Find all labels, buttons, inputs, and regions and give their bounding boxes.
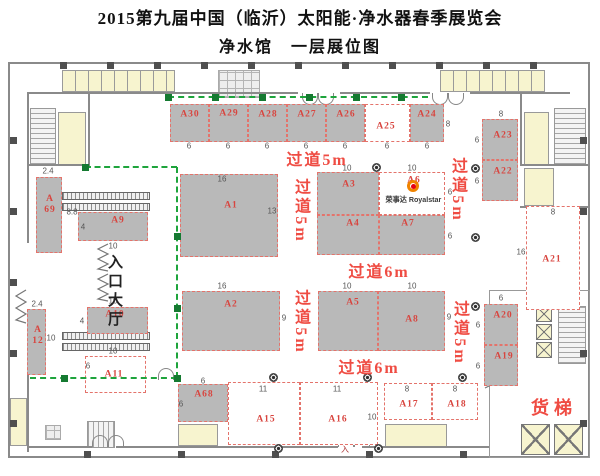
booth-label: A23 — [493, 131, 512, 142]
column-marker — [458, 373, 467, 382]
booth-A21[interactable]: A21 — [526, 206, 580, 310]
path-marker — [259, 94, 266, 101]
dimension-label: 6 — [476, 321, 480, 330]
booth-label: A20 — [493, 311, 512, 322]
booth-label: A22 — [493, 167, 512, 178]
booth-A2[interactable]: A2 — [182, 291, 280, 351]
room-bottom-1 — [178, 424, 218, 446]
booth-label: A17 — [399, 400, 418, 411]
dimension-label: 9 — [282, 314, 286, 323]
booth-A20[interactable]: A20 — [484, 304, 518, 345]
booth-A9[interactable]: A9 — [78, 212, 148, 241]
room-bottom-2 — [385, 424, 447, 448]
escalator-lower — [62, 332, 150, 353]
dimension-label: 6 — [475, 136, 479, 145]
dimension-label: 6 — [385, 142, 389, 151]
booth-A25[interactable]: A25 — [365, 104, 410, 142]
aisle-label: 过道5m — [447, 300, 471, 365]
royalstar-name: 荣事达 Royalstar — [385, 194, 440, 204]
path-marker — [398, 94, 405, 101]
booth-label: A18 — [447, 400, 466, 411]
wall — [520, 164, 590, 166]
wall-column — [342, 62, 349, 69]
aisle-label: 过道5m — [288, 289, 312, 354]
wall-column — [460, 451, 467, 458]
dimension-label: 8 — [446, 120, 450, 129]
booth-label: A2 — [224, 300, 238, 311]
dimension-label: 6 — [179, 400, 183, 409]
booth-label: A15 — [256, 415, 275, 426]
dimension-label: 6 — [201, 377, 205, 386]
booth-label: A28 — [258, 110, 277, 121]
dimension-label: 11 — [333, 385, 341, 394]
wall — [88, 92, 90, 166]
double-door — [92, 435, 124, 447]
booth-label: A4 — [346, 219, 360, 230]
royalstar-logo: 荣事达 Royalstar — [384, 180, 442, 205]
booth-label: A19 — [494, 352, 513, 363]
visitor-path — [30, 377, 177, 379]
path-marker — [165, 94, 172, 101]
wall-column — [580, 137, 587, 144]
dimension-label: 10 — [109, 347, 118, 356]
dimension-label: 8 — [551, 208, 555, 217]
path-marker — [353, 94, 360, 101]
dimension-label: 8 — [453, 385, 457, 394]
path-marker — [212, 94, 219, 101]
booth-A69[interactable]: A 69 — [36, 177, 62, 253]
booth-A8[interactable]: A8 — [378, 291, 445, 351]
wall-column — [178, 451, 185, 458]
booth-A4[interactable]: A4 — [317, 215, 379, 255]
booth-A27[interactable]: A27 — [287, 104, 326, 142]
freight-elevator-shaft — [554, 424, 583, 455]
dimension-label: 13 — [268, 207, 277, 216]
dimension-label: 2.4 — [31, 300, 42, 309]
path-marker — [82, 164, 89, 171]
booth-A26[interactable]: A26 — [326, 104, 365, 142]
dimension-label: 6 — [499, 294, 503, 303]
wall-column — [201, 62, 208, 69]
aisle-label: 过道5m — [288, 178, 312, 243]
booth-A12[interactable]: A 12 — [27, 309, 46, 375]
path-marker — [306, 94, 313, 101]
stairs-top-left — [30, 108, 56, 165]
booth-label: A26 — [336, 110, 355, 121]
floorplan: 入口大厅 货梯 入 荣事达 Royalstar A30A29A28A27A26A… — [0, 0, 600, 476]
dimension-label: 4 — [81, 223, 85, 232]
wall-column — [107, 62, 114, 69]
booth-A23[interactable]: A23 — [482, 119, 518, 160]
elevator-room-right — [524, 168, 554, 206]
booth-A7[interactable]: A7 — [379, 215, 445, 255]
booth-label: A5 — [346, 298, 360, 309]
accordion-door-icon — [14, 289, 28, 324]
column-marker — [274, 444, 283, 453]
path-marker — [174, 375, 181, 382]
dimension-label: 10 — [408, 164, 417, 173]
dimension-label: 6 — [187, 142, 191, 151]
wall — [28, 92, 298, 94]
booth-label: A68 — [194, 390, 213, 401]
freight-elevator-shaft — [521, 424, 550, 455]
wall-column — [366, 451, 373, 458]
dimension-label: 8.8 — [66, 208, 77, 217]
dimension-label: 10 — [47, 334, 56, 343]
booth-label: A24 — [417, 110, 436, 121]
booth-A3[interactable]: A3 — [317, 172, 379, 215]
wall-column — [10, 350, 17, 357]
wall-column — [154, 62, 161, 69]
wall — [520, 92, 522, 166]
wall — [116, 446, 338, 448]
dimension-label: 16 — [517, 248, 526, 257]
wall-column — [530, 62, 537, 69]
dimension-label: 8 — [499, 110, 503, 119]
booth-label: A16 — [328, 415, 347, 426]
column-marker — [372, 163, 381, 172]
booth-label: A1 — [224, 201, 238, 212]
column-marker — [269, 373, 278, 382]
wall-column — [84, 451, 91, 458]
royalstar-dot-icon — [411, 184, 416, 189]
wall — [27, 92, 29, 243]
dimension-label: 10 — [368, 413, 377, 422]
wall-column — [10, 137, 17, 144]
entrance-hall-label: 入口大厅 — [104, 254, 125, 330]
dimension-label: 6 — [425, 142, 429, 151]
visitor-path — [85, 166, 177, 168]
elevator-shaft — [536, 342, 552, 358]
restroom-right — [440, 70, 545, 92]
dimension-label: 6 — [226, 142, 230, 151]
dimension-label: 2.4 — [42, 167, 53, 176]
elevator-shaft — [536, 324, 552, 340]
wall-column — [580, 350, 587, 357]
booth-A1[interactable]: A1 — [180, 174, 278, 257]
column-marker — [471, 233, 480, 242]
elevator-room-top-right — [524, 112, 549, 165]
freight-elevator-label: 货梯 — [524, 394, 584, 420]
wall-column — [295, 62, 302, 69]
service-box — [45, 425, 61, 440]
wall-column — [10, 279, 17, 286]
booth-label: A 12 — [32, 325, 44, 347]
dimension-label: 6 — [475, 177, 479, 186]
entry-door-mark: 入 — [341, 444, 349, 455]
booth-label: A21 — [542, 255, 561, 266]
wall-column — [580, 420, 587, 427]
visitor-path — [176, 167, 178, 378]
path-marker — [174, 305, 181, 312]
column-marker — [471, 302, 480, 311]
path-marker — [61, 375, 68, 382]
booth-A29[interactable]: A29 — [209, 104, 248, 142]
visitor-path — [168, 96, 428, 98]
wall-column — [60, 62, 67, 69]
booth-label: A 69 — [44, 194, 56, 216]
dimension-label: 8 — [405, 385, 409, 394]
wall — [28, 164, 88, 166]
path-marker — [174, 233, 181, 240]
aisle-label: 过道5m — [286, 146, 347, 170]
wall-column — [10, 208, 17, 215]
aisle-label: 过道6m — [348, 258, 409, 282]
booth-label: A9 — [111, 216, 125, 227]
booth-A68[interactable]: A68 — [178, 384, 228, 422]
floorplan-page: 2015第九届中国（临沂）太阳能·净水器春季展览会 净水馆 一层展位图 — [0, 0, 600, 476]
wall-column — [10, 420, 17, 427]
elevator-room-top-left — [58, 112, 86, 165]
column-marker — [471, 164, 480, 173]
booth-label: A29 — [219, 109, 238, 120]
wall-column — [436, 62, 443, 69]
booth-A5[interactable]: A5 — [318, 291, 378, 351]
wall-column — [580, 208, 587, 215]
dimension-label: 10 — [408, 282, 417, 291]
booth-label: A7 — [401, 219, 415, 230]
wall-column — [248, 62, 255, 69]
dimension-label: 16 — [218, 175, 227, 184]
column-marker — [374, 444, 383, 453]
restroom-left — [62, 70, 175, 92]
dimension-label: 4 — [80, 317, 84, 326]
booth-label: A3 — [342, 180, 356, 191]
dimension-label: 6 — [448, 232, 452, 241]
booth-A11[interactable]: A11 — [85, 356, 146, 393]
booth-label: A27 — [297, 110, 316, 121]
aisle-label: 过道6m — [338, 354, 399, 378]
booth-A24[interactable]: A24 — [410, 104, 444, 142]
royalstar-ring-icon — [407, 180, 419, 192]
wall-column — [389, 62, 396, 69]
dimension-label: 6 — [86, 362, 90, 371]
booth-label: A8 — [405, 315, 419, 326]
dimension-label: 16 — [218, 282, 227, 291]
dimension-label: 10 — [109, 242, 118, 251]
booth-A19[interactable]: A19 — [484, 345, 518, 386]
booth-A28[interactable]: A28 — [248, 104, 287, 142]
wall — [28, 446, 92, 448]
booth-label: A25 — [376, 122, 395, 133]
dimension-label: 11 — [259, 385, 267, 394]
booth-A30[interactable]: A30 — [170, 104, 209, 142]
booth-A22[interactable]: A22 — [482, 160, 518, 201]
booth-label: A30 — [180, 110, 199, 121]
dimension-label: 6 — [265, 142, 269, 151]
wall-column — [483, 62, 490, 69]
dimension-label: 6 — [476, 362, 480, 371]
dimension-label: 10 — [343, 282, 352, 291]
aisle-label: 过道5m — [445, 157, 469, 222]
